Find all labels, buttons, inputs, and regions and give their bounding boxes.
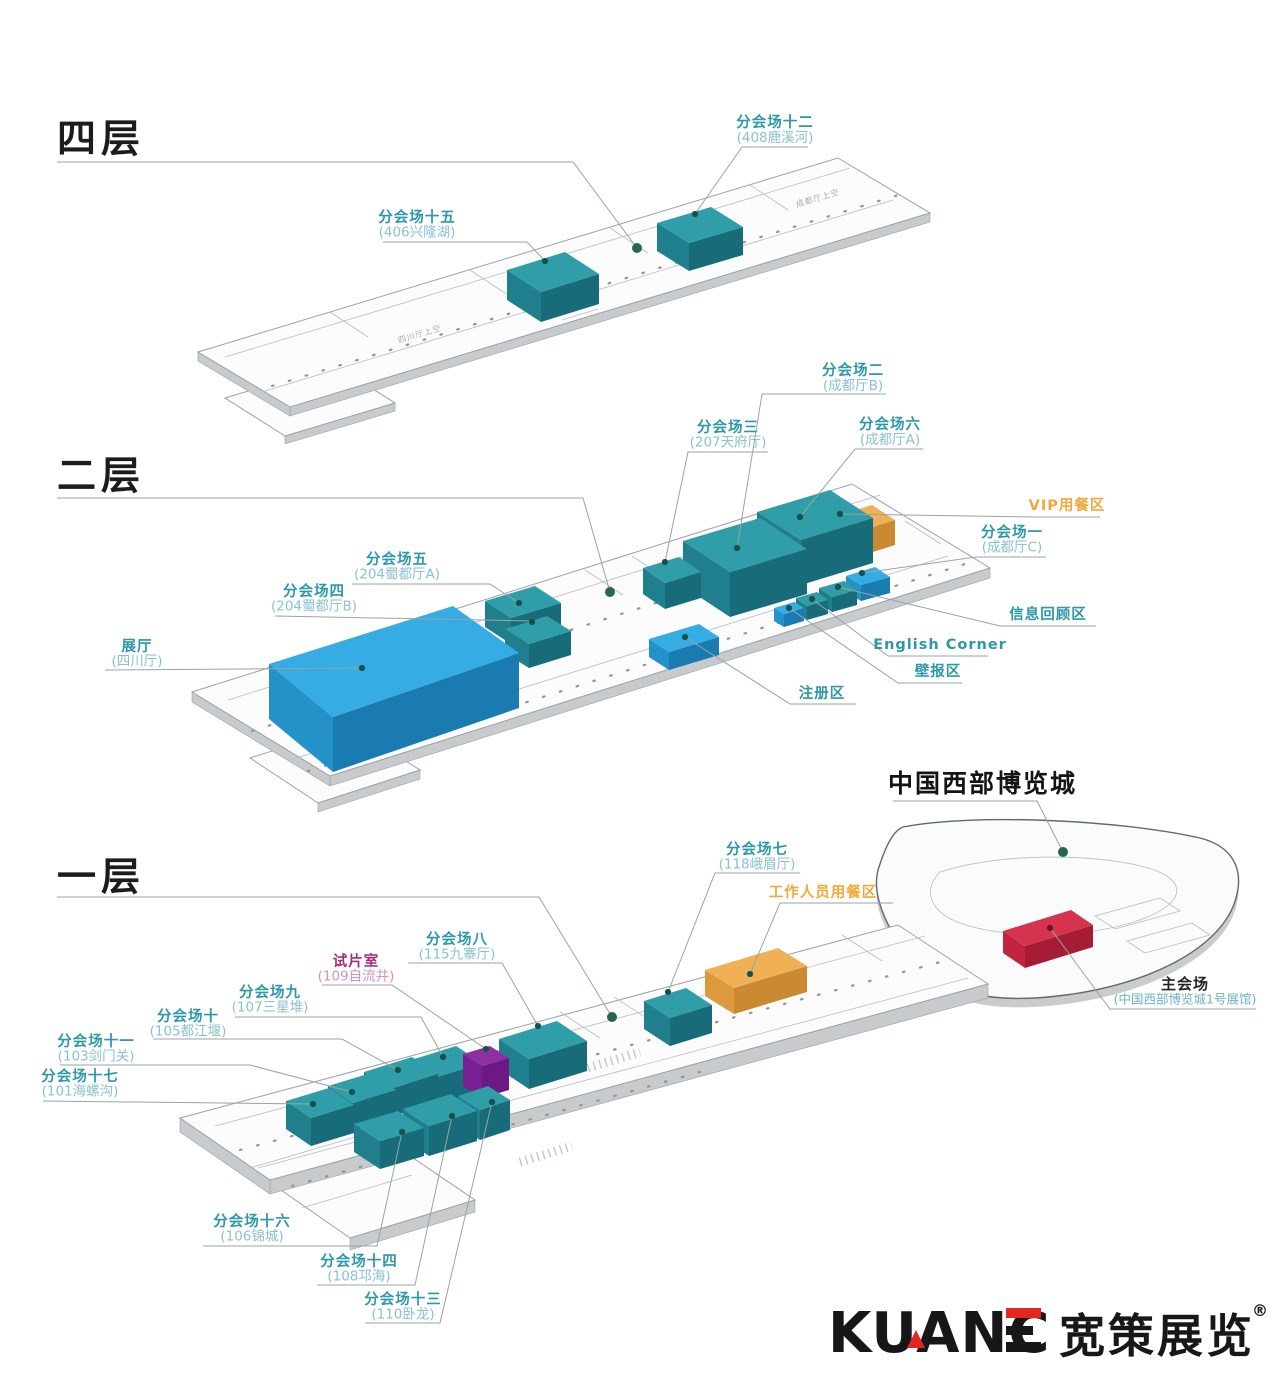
expo-city-heading-text-0: 中国西部博览城 (888, 769, 1077, 798)
floor1-plate (180, 925, 988, 1250)
venue-11-text-1: (103剑门关) (58, 1049, 135, 1065)
staff-dining-text-0: 工作人员用餐区 (769, 883, 878, 901)
marker-dot (1058, 847, 1068, 857)
marker-dot (449, 1113, 455, 1119)
kuance-logo: KUANC 宽策展览 ® (828, 1301, 1268, 1366)
leader-line (235, 1017, 443, 1057)
venue-9-label: 分会场九(107三星堆) (232, 983, 447, 1060)
venue-8-label: 分会场八(115九寨厅) (408, 930, 541, 1029)
marker-dot (662, 559, 668, 565)
venue-15-text-0: 分会场十五 (378, 208, 456, 226)
main-venue-text-1: (中国西部博览城1号展馆) (1114, 992, 1257, 1007)
floor2-heading-text-0: 二层 (57, 454, 145, 499)
logo-e-top-bar (1006, 1308, 1041, 1318)
floor2-heading-label: 二层 (57, 454, 615, 597)
venue-4-text-0: 分会场四 (283, 582, 345, 600)
registration-area-text-0: 注册区 (799, 684, 846, 702)
venue-9-text-0: 分会场九 (239, 983, 301, 1001)
venue-15-text-1: (406兴隆湖) (379, 225, 456, 241)
venue-4-text-1: (204蜀都厅B) (271, 599, 357, 615)
marker-dot (734, 545, 740, 551)
venue-10-text-1: (105都江堰) (150, 1024, 227, 1040)
marker-dot (786, 605, 792, 611)
marker-dot (535, 1023, 541, 1029)
venue-13-text-1: (110卧龙) (371, 1307, 434, 1323)
venue-11-text-0: 分会场十一 (57, 1032, 135, 1050)
venue-14-text-1: (108邛海) (327, 1269, 390, 1285)
screening-room-text-0: 试片室 (333, 952, 380, 970)
venue-13-text-0: 分会场十三 (364, 1290, 442, 1308)
floor1-heading-text-0: 一层 (57, 855, 145, 900)
marker-dot (516, 600, 522, 606)
venue-5-text-0: 分会场五 (366, 550, 428, 568)
vip-dining-text-0: VIP用餐区 (1029, 496, 1106, 514)
venue-3-text-0: 分会场三 (697, 418, 759, 436)
marker-dot (489, 1099, 495, 1105)
leader-line (57, 498, 610, 592)
venue-9-text-1: (107三星堆) (232, 1000, 309, 1016)
floor4-heading-text-0: 四层 (57, 117, 145, 162)
marker-dot (797, 514, 803, 520)
venue-10-text-0: 分会场十 (157, 1007, 219, 1025)
floor1-heading-label: 一层 (57, 855, 617, 1022)
exhibition-hall-box (269, 606, 519, 772)
venue-2-text-0: 分会场二 (822, 361, 884, 379)
screening-room-label: 试片室(109自流井) (318, 952, 490, 1052)
venue-14-text-0: 分会场十四 (320, 1252, 398, 1270)
marker-dot (529, 619, 535, 625)
marker-dot (809, 596, 815, 602)
marker-dot (440, 1054, 446, 1060)
venue-floorplan-diagram: 成都厅上空四川厅上空 四层二层一层中国西部博览城分会场十五(406兴隆湖)分会场… (0, 0, 1280, 1394)
venue-17-text-1: (101海螺沟) (42, 1084, 119, 1100)
venue-6-text-0: 分会场六 (859, 415, 921, 433)
venue-2-text-1: (成都厅B) (823, 378, 883, 394)
poster-area-text-0: 壁报区 (915, 662, 962, 680)
venue-16-text-0: 分会场十六 (213, 1212, 291, 1230)
marker-dot (395, 1067, 401, 1073)
venue-7-text-0: 分会场七 (726, 840, 788, 858)
venue-6-text-1: (成都厅A) (860, 432, 920, 448)
venue-5-text-1: (204蜀都厅A) (354, 567, 440, 583)
marker-dot (1047, 925, 1053, 931)
screening-room-text-1: (109自流井) (318, 969, 395, 985)
marker-dot (692, 211, 698, 217)
marker-dot (359, 665, 365, 671)
venue-12-text-0: 分会场十二 (736, 113, 814, 131)
marker-dot (835, 584, 841, 590)
marker-dot (483, 1046, 489, 1052)
marker-dot (605, 587, 615, 597)
marker-dot (349, 1089, 355, 1095)
floor4-heading-label: 四层 (57, 117, 642, 253)
plan-line (520, 1146, 572, 1162)
venue-1-text-1: (成都厅C) (982, 540, 1042, 556)
logo-registered-mark: ® (1252, 1301, 1268, 1320)
marker-dot (399, 1129, 405, 1135)
logo-cn-text: 宽策展览 (1059, 1309, 1255, 1363)
exhibition-hall-text-1: (四川厅) (111, 654, 162, 670)
logo-e-mid-bar (1006, 1326, 1033, 1335)
marker-dot (837, 511, 843, 517)
marker-dot (859, 570, 865, 576)
leader-line (57, 162, 637, 248)
venue-8-text-1: (115九寨厅) (419, 946, 496, 963)
venue-8-text-0: 分会场八 (426, 930, 488, 948)
logo-e-bottom-bar (1006, 1342, 1041, 1352)
venue-7-text-1: (118峨眉厅) (719, 857, 796, 873)
marker-dot (310, 1101, 316, 1107)
exhibition-hall-text-0: 展厅 (122, 638, 153, 655)
english-corner-text-0: English Corner (873, 637, 1007, 653)
marker-dot (542, 258, 548, 264)
info-review-area-text-0: 信息回顾区 (1009, 605, 1087, 623)
marker-dot (665, 989, 671, 995)
leader-line (408, 963, 538, 1026)
venue-16-text-1: (106锦城) (220, 1229, 283, 1245)
marker-dot (747, 971, 753, 977)
marker-dot (632, 243, 642, 253)
venue-17-text-0: 分会场十七 (41, 1067, 119, 1085)
venue-1-text-0: 分会场一 (981, 523, 1043, 541)
main-venue-text-0: 主会场 (1161, 975, 1209, 993)
marker-dot (682, 634, 688, 640)
venue-12-text-1: (408鹿溪河) (737, 129, 814, 146)
marker-dot (607, 1012, 617, 1022)
